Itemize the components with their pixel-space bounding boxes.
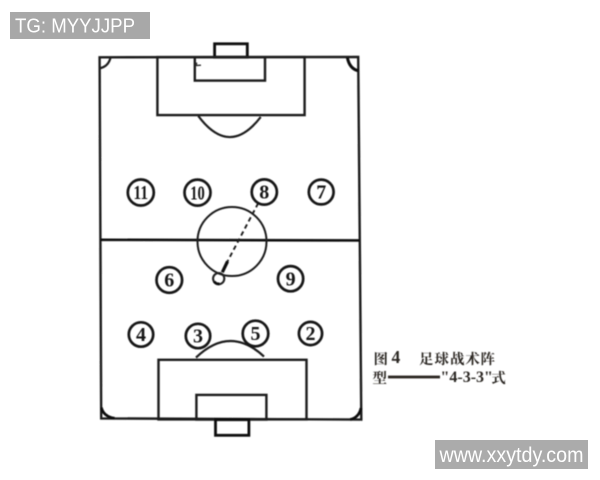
svg-text:"4-3-3": "4-3-3" — [441, 369, 493, 386]
svg-text:9: 9 — [286, 268, 296, 290]
svg-text:4: 4 — [392, 347, 401, 367]
svg-text:www.xxytdy.com: www.xxytdy.com — [439, 444, 584, 467]
svg-text:6: 6 — [164, 270, 174, 292]
svg-text:8: 8 — [259, 182, 269, 204]
svg-text:5: 5 — [251, 323, 261, 345]
svg-text:TG: MYYJJPP: TG: MYYJJPP — [15, 16, 135, 38]
svg-text:3: 3 — [193, 326, 203, 348]
svg-text:7: 7 — [316, 182, 326, 204]
svg-text:11: 11 — [134, 182, 149, 204]
svg-text:4: 4 — [136, 324, 146, 346]
svg-text:10: 10 — [190, 182, 205, 204]
svg-text:2: 2 — [306, 323, 316, 345]
